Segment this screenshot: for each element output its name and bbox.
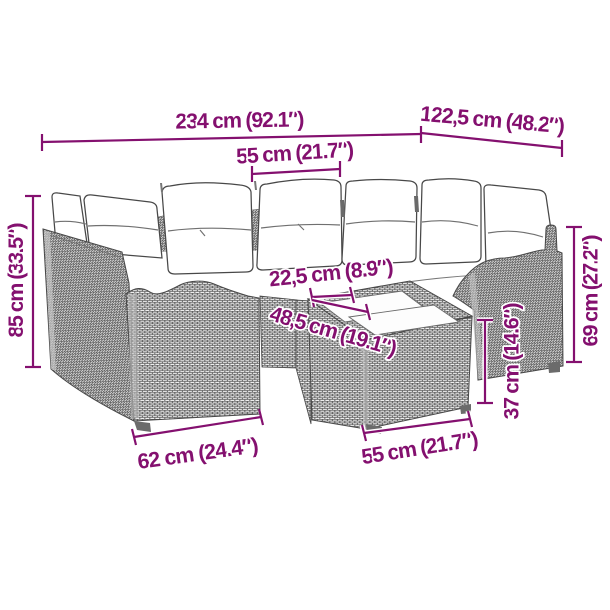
svg-text:234 cm (92.1″): 234 cm (92.1″) xyxy=(175,107,304,133)
svg-text:85 cm (33.5″): 85 cm (33.5″) xyxy=(4,223,28,338)
svg-text:37 cm (14.6″): 37 cm (14.6″) xyxy=(500,303,524,420)
svg-text:69 cm (27.2″): 69 cm (27.2″) xyxy=(579,235,603,347)
